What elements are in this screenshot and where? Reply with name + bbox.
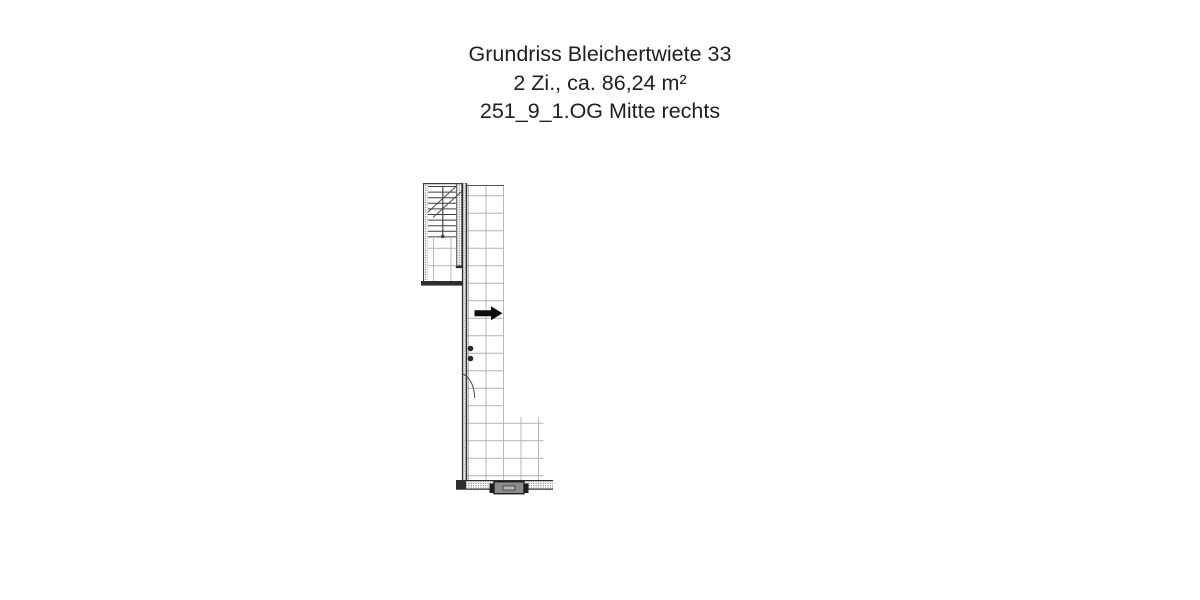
svg-text:251_9_1.OG Mitte rechts: 251_9_1.OG Mitte rechts [480, 99, 720, 123]
svg-text:2 Zi., ca. 86,24 m²: 2 Zi., ca. 86,24 m² [513, 71, 686, 95]
svg-text:Grundriss Bleichertwiete 33: Grundriss Bleichertwiete 33 [469, 42, 732, 66]
